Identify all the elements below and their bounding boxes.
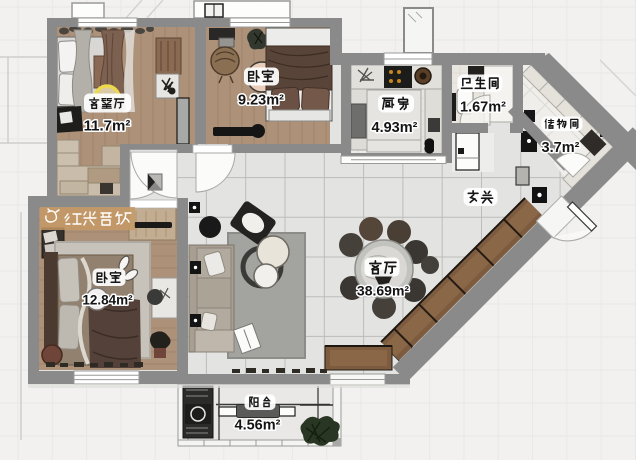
svg-text:38.69m²: 38.69m²	[357, 283, 409, 299]
svg-text:4.56m²: 4.56m²	[235, 418, 281, 434]
svg-text:9.23m²: 9.23m²	[238, 93, 284, 109]
svg-text:11.7m²: 11.7m²	[84, 118, 131, 135]
svg-text:3.7m²: 3.7m²	[542, 140, 580, 156]
svg-text:1.67m²: 1.67m²	[460, 100, 506, 116]
svg-text:12.84m²: 12.84m²	[82, 293, 133, 308]
svg-text:4.93m²: 4.93m²	[372, 120, 418, 136]
